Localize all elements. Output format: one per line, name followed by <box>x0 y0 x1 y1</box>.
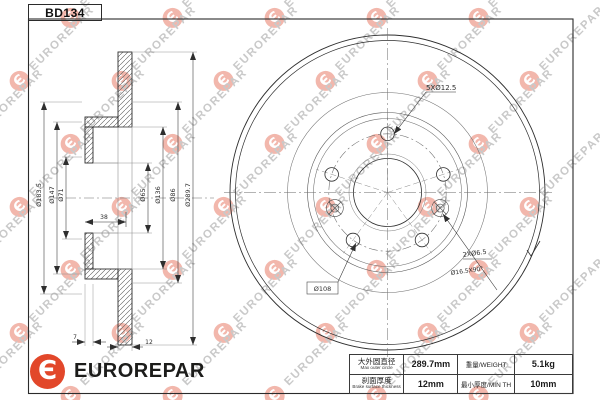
dim-hub-face-label: Ø86 <box>169 188 177 201</box>
brand-block: Є EUROREPAR <box>30 354 205 389</box>
dim-thickness-label: 12 <box>145 339 153 346</box>
table-row: 大外圆直径 Max outer circle 289.7mm 重量/WEIGHT… <box>350 355 573 375</box>
cell-minth-value: 10mm <box>514 374 572 394</box>
cell-max-outer-value: 289.7mm <box>404 355 458 375</box>
max-outer-label-en: Max outer circle <box>351 366 402 371</box>
eurorepar-logo-icon: Є <box>30 354 65 389</box>
dim-outer-label: Ø289.7 <box>184 183 192 207</box>
brand-name: EUROREPAR <box>74 360 205 383</box>
cell-max-outer-label: 大外圆直径 Max outer circle <box>350 355 404 375</box>
section-dimension-labels: Ø183.5 Ø147 Ø71 Ø65 Ø136 Ø86 Ø289.7 38 7… <box>35 183 192 346</box>
bolt-holes-label: 5XØ12.5 <box>426 84 456 92</box>
countersink-label: Ø16.5X90° <box>450 265 483 277</box>
dim-hat-depth-label: 38 <box>100 214 108 221</box>
dim-wall-label: 7 <box>73 334 77 341</box>
cell-weight-label: 重量/WEIGHT <box>458 355 514 375</box>
logo-glyph: Є <box>38 358 57 384</box>
dim-hat-label: Ø147 <box>48 186 56 204</box>
cell-minth-label: 最小厚度/MIN TH <box>458 374 514 394</box>
table-row: 刹面厚度 Brake surface thickness 12mm 最小厚度/M… <box>350 374 573 394</box>
cell-thickness-value: 12mm <box>404 374 458 394</box>
cell-weight-value: 5.1kg <box>514 355 572 375</box>
max-outer-label-cn: 大外圆直径 <box>350 358 403 366</box>
dim-hat-flange-label: Ø183.5 <box>35 183 43 207</box>
dim-bore-label: Ø65 <box>139 188 147 201</box>
sheet-border <box>29 19 574 394</box>
dim-bore-chamfer-label: Ø71 <box>57 188 65 201</box>
part-number-box: BD134 <box>28 4 102 21</box>
front-view <box>224 28 552 357</box>
technical-drawing: Ø183.5 Ø147 Ø71 Ø65 Ø136 Ø86 Ø289.7 38 7… <box>0 0 600 400</box>
dim-inner-ring-label: Ø136 <box>154 186 162 204</box>
drawing-sheet: ЄEUROREPARЄEUROREPARЄEUROREPARЄEUROREPAR… <box>0 0 600 400</box>
thickness-label-cn: 刹面厚度 <box>350 377 403 385</box>
bolt-circle-label: Ø108 <box>314 285 332 293</box>
thickness-label-en: Brake surface thickness <box>351 385 402 390</box>
spec-table: 大外圆直径 Max outer circle 289.7mm 重量/WEIGHT… <box>349 354 573 394</box>
part-number: BD134 <box>45 6 85 20</box>
screw-holes-label: 2XØ6.5 <box>462 248 487 259</box>
cell-thickness-label: 刹面厚度 Brake surface thickness <box>350 374 404 394</box>
